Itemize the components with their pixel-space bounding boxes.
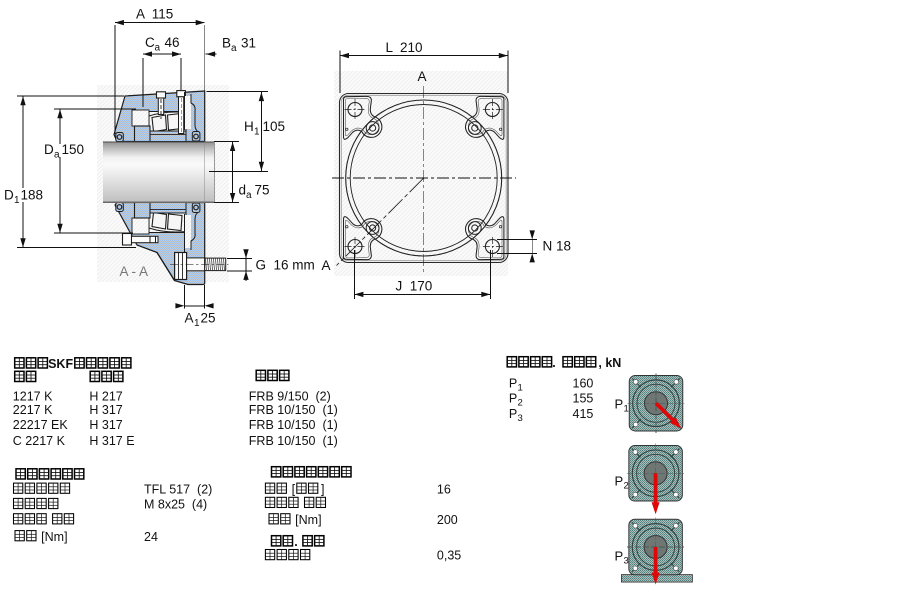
svg-text:H 317 E: H 317 E [89, 434, 134, 448]
svg-text:3: 3 [624, 556, 629, 567]
svg-text:J 170: J 170 [396, 279, 433, 294]
svg-text:]: ] [321, 482, 324, 496]
svg-text:3: 3 [518, 413, 523, 424]
svg-text:H 317: H 317 [89, 418, 122, 432]
svg-text:[Nm]: [Nm] [292, 513, 322, 527]
svg-text:A: A [322, 258, 331, 273]
svg-text:105: 105 [263, 119, 286, 134]
svg-text:A: A [418, 69, 427, 84]
svg-text:B: B [222, 36, 231, 51]
svg-text:SKF: SKF [48, 357, 73, 371]
svg-text:22217 EK: 22217 EK [13, 418, 69, 432]
svg-text:P: P [615, 549, 624, 564]
svg-text:P: P [615, 397, 624, 412]
svg-text:D: D [4, 188, 14, 203]
svg-text:P: P [509, 377, 517, 391]
svg-text:1: 1 [14, 195, 20, 206]
svg-text:C: C [145, 35, 155, 50]
svg-text:P: P [509, 392, 517, 406]
svg-text:A - A: A - A [120, 264, 149, 279]
svg-text:24: 24 [144, 530, 158, 544]
svg-text:A: A [185, 311, 194, 326]
svg-text:C 2217 K: C 2217 K [13, 434, 66, 448]
svg-text:.: . [294, 535, 301, 549]
svg-text:75: 75 [255, 183, 270, 198]
svg-text:[: [ [288, 482, 295, 496]
svg-text:1: 1 [518, 383, 523, 394]
svg-text:.: . [552, 356, 559, 370]
svg-text:160: 160 [573, 377, 594, 391]
svg-text:D: D [44, 142, 54, 157]
svg-text:H 317: H 317 [89, 403, 122, 417]
svg-text:FRB 10/150 (1): FRB 10/150 (1) [249, 434, 338, 448]
svg-text:150: 150 [62, 142, 85, 157]
svg-text:N 18: N 18 [543, 239, 572, 254]
svg-text:, kN: , kN [598, 356, 621, 370]
svg-text:46: 46 [165, 35, 180, 50]
svg-text:FRB 10/150 (1): FRB 10/150 (1) [249, 403, 338, 417]
svg-text:A 115: A 115 [136, 7, 173, 22]
svg-text:a: a [246, 190, 252, 201]
svg-text:H: H [244, 119, 254, 134]
svg-text:188: 188 [21, 188, 44, 203]
svg-text:31: 31 [241, 36, 256, 51]
svg-text:1: 1 [254, 127, 260, 138]
svg-text:2217 K: 2217 K [13, 403, 53, 417]
svg-text:1217 K: 1217 K [13, 389, 53, 403]
svg-text:P: P [615, 474, 624, 489]
svg-text:P: P [509, 407, 517, 421]
svg-text:25: 25 [201, 311, 216, 326]
svg-text:1: 1 [194, 318, 200, 329]
svg-text:2: 2 [518, 398, 523, 409]
svg-text:a: a [54, 150, 60, 161]
svg-text:200: 200 [437, 513, 458, 527]
svg-text:0,35: 0,35 [437, 549, 461, 563]
svg-text:a: a [231, 43, 237, 54]
svg-text:d: d [239, 183, 247, 198]
svg-text:155: 155 [573, 392, 594, 406]
svg-text:1: 1 [624, 404, 629, 415]
svg-text:2: 2 [624, 481, 629, 492]
svg-text:TFL 517 (2): TFL 517 (2) [144, 482, 212, 496]
svg-text:M 8x25 (4): M 8x25 (4) [144, 498, 207, 512]
svg-text:FRB 10/150 (1): FRB 10/150 (1) [249, 418, 338, 432]
svg-text:415: 415 [573, 407, 594, 421]
svg-text:a: a [155, 43, 161, 54]
svg-text:H 217: H 217 [89, 389, 122, 403]
svg-text:[Nm]: [Nm] [38, 530, 68, 544]
svg-text:G 16 mm: G 16 mm [256, 258, 315, 273]
svg-text:L 210: L 210 [386, 40, 423, 55]
svg-text:16: 16 [437, 482, 451, 496]
svg-text:FRB 9/150 (2): FRB 9/150 (2) [249, 389, 331, 403]
